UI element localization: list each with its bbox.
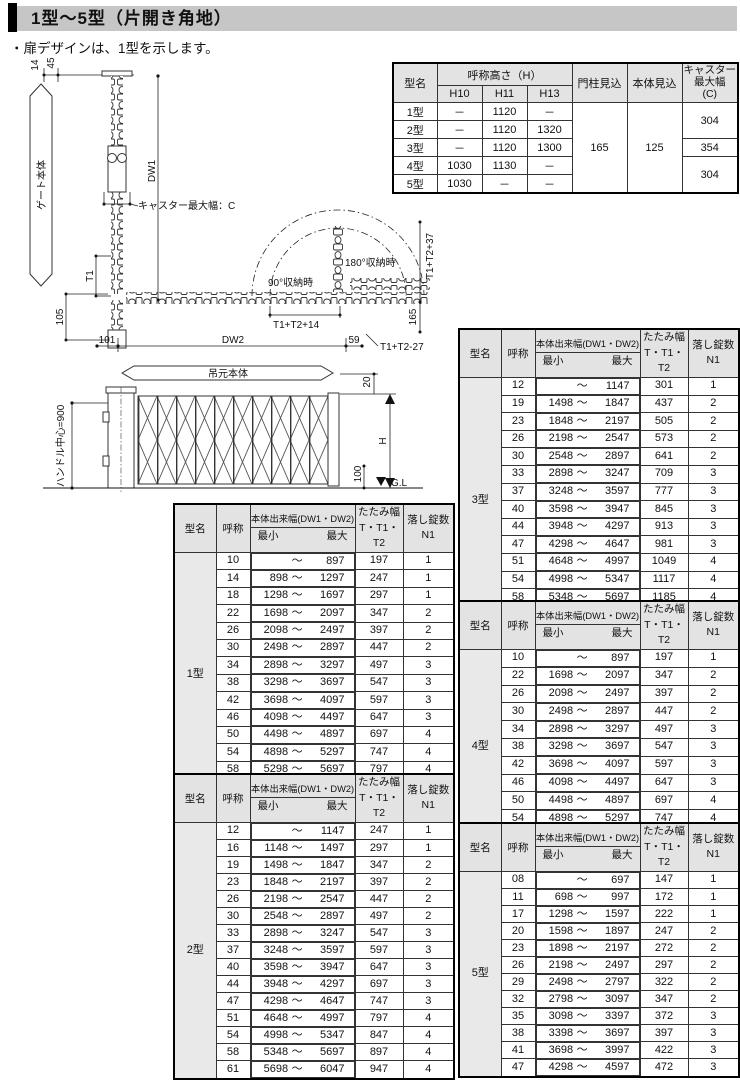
cell-c-lock: 2	[688, 974, 739, 991]
r-min: 2898	[252, 658, 289, 673]
col-model: 型名	[174, 504, 216, 552]
cell: －	[527, 157, 572, 175]
table-row: 504498～48976974	[459, 792, 739, 810]
cell-c-name: 34	[501, 721, 535, 739]
cell-range: 1298～1697	[251, 587, 355, 604]
cell-c-fold: 547	[355, 674, 403, 691]
r-max: 2897	[306, 909, 353, 924]
table-row: 302498～28974472	[459, 703, 739, 721]
r-min: 4298	[537, 1060, 574, 1075]
dim-100-label: 100	[353, 465, 364, 482]
cell-c-fold: 301	[640, 377, 688, 395]
cell-c-lock: 4	[403, 1027, 454, 1044]
cell-c-fold: 697	[640, 792, 688, 810]
r-tilde: ～	[573, 537, 591, 553]
cell-c-fold: 1049	[640, 553, 688, 571]
cell-c-lock: 1	[403, 822, 454, 840]
table-row: 5型08～6971471	[459, 871, 739, 889]
cell-c-fold: 647	[355, 709, 403, 726]
table-row: 262198～24972972	[459, 957, 739, 974]
item-header-row: 型名 呼称 本体出来幅(DW1・DW2) 最小 最大 たたみ幅 T・T1・T2 …	[174, 774, 454, 822]
t1t2p14-label: T1+T2+14	[273, 320, 320, 331]
cell-c-lock: 2	[688, 413, 739, 431]
col-max: 最大	[612, 847, 633, 863]
r-max: 2197	[591, 941, 638, 956]
cell-c-fold: 597	[355, 942, 403, 959]
r-tilde: ～	[288, 571, 306, 586]
cell-range: 2098～2497	[251, 622, 355, 639]
t1t2p37-label: T1+T2+37	[425, 232, 436, 279]
col-lock-sub: N1	[689, 353, 739, 369]
col-lock-title: 落し錠数	[404, 783, 454, 799]
table-row: 3型12～11473011	[459, 377, 739, 395]
r-max: 1497	[306, 841, 353, 856]
r-min: 2548	[537, 449, 574, 465]
r-tilde: ～	[288, 926, 306, 941]
cell-c-name: 30	[216, 639, 250, 656]
col-max: 最大	[612, 353, 633, 369]
cell-c-fold: 597	[355, 692, 403, 709]
cell-c-lock: 2	[688, 703, 739, 721]
cell-c-name: 30	[501, 448, 535, 466]
cell-range: 1848～2197	[251, 874, 355, 891]
cell-range: 1298～1597	[536, 906, 640, 923]
r-tilde: ～	[573, 873, 591, 888]
cell-c-name: 23	[216, 874, 250, 891]
r-max: 2497	[591, 958, 638, 973]
r-max: 3247	[306, 926, 353, 941]
cell-c-name: 46	[216, 709, 250, 726]
cell-c-fold: 497	[355, 657, 403, 674]
cell-c-name: 38	[501, 1025, 535, 1042]
cell-c-lock: 3	[403, 976, 454, 993]
dim-14-label: 14	[30, 59, 41, 71]
gate-stored-90	[332, 226, 344, 292]
col-fold-title: たたみ幅	[356, 505, 403, 521]
r-min: 4648	[252, 1011, 289, 1026]
table-row: 262098～24973972	[459, 685, 739, 703]
cell-c-lock: 3	[688, 518, 739, 536]
cell-range: 4998～5347	[536, 571, 640, 589]
gate-technical-drawing: 14 45 ゲート本体 キャスター最大幅：C DW1 T1 105 90°収納時…	[8, 56, 448, 506]
cell-c-fold: 777	[640, 483, 688, 501]
cell-c-lock: 1	[688, 871, 739, 889]
cell-c-name: 35	[501, 1008, 535, 1025]
table-row: 302548～28976412	[459, 448, 739, 466]
item-header-row: 型名 呼称 本体出来幅(DW1・DW2) 最小 最大 たたみ幅 T・T1・T2 …	[459, 601, 739, 649]
cell-c-fold: 347	[355, 857, 403, 874]
cell-c-lock: 3	[403, 657, 454, 674]
col-fold-title: たたみ幅	[641, 330, 688, 346]
cell-c-lock: 2	[688, 991, 739, 1008]
r-max: 3247	[591, 466, 638, 482]
model-name-cell: 3型	[459, 377, 501, 625]
r-tilde: ～	[288, 858, 306, 873]
cell-range: ～1147	[251, 823, 355, 840]
cell-range: 4998～5347	[251, 1027, 355, 1044]
table-row: 443948～42979133	[459, 518, 739, 536]
cell-range: 3598～3947	[536, 501, 640, 519]
r-min: 2498	[537, 975, 574, 990]
table-row: 262098～24973972	[174, 622, 454, 639]
cell-range: 2548～2897	[536, 448, 640, 466]
table-row: 231848～21973972	[174, 874, 454, 891]
dim-45-label: 45	[46, 57, 57, 69]
col-model: 型名	[459, 329, 501, 377]
cell-c-fold: 847	[355, 1027, 403, 1044]
cell-c-lock: 1	[688, 649, 739, 667]
cell-c-lock: 2	[688, 448, 739, 466]
r-tilde: ～	[288, 693, 306, 708]
r-max: 1847	[306, 858, 353, 873]
table-row: 231848～21975052	[459, 413, 739, 431]
cell-range: ～697	[536, 872, 640, 889]
cell-caster-value: 304	[682, 157, 738, 194]
cell-range: 1498～1847	[536, 395, 640, 413]
cell-c-lock: 3	[403, 993, 454, 1010]
cell-c-name: 51	[216, 1010, 250, 1027]
cell-range: 5698～6047	[251, 1061, 355, 1078]
r-max: 6047	[306, 1062, 353, 1077]
cell-c-name: 20	[501, 923, 535, 940]
table-row: 514648～49977974	[174, 1010, 454, 1027]
cell-c-name: 14	[216, 570, 250, 587]
type2-size-table: 型名 呼称 本体出来幅(DW1・DW2) 最小 最大 たたみ幅 T・T1・T2 …	[173, 773, 455, 1080]
cell: 1320	[527, 121, 572, 139]
cell-c-lock: 1	[688, 889, 739, 906]
cell-c-name: 18	[216, 587, 250, 604]
cell-c-fold: 647	[640, 774, 688, 792]
col-name: 呼称	[501, 823, 535, 871]
table-row: 413698～39974223	[459, 1042, 739, 1059]
r-tilde: ～	[288, 994, 306, 1009]
cell-c-fold: 347	[640, 667, 688, 685]
r-max: 4497	[306, 710, 353, 725]
cell-c-name: 26	[501, 685, 535, 703]
stored-180-label: 180°収納時	[345, 256, 396, 269]
col-lock-title: 落し錠数	[689, 338, 739, 354]
cell-c-fold: 397	[355, 622, 403, 639]
table-row: 585348～56978974	[174, 1044, 454, 1061]
cell-c-name: 47	[216, 993, 250, 1010]
table-row: 171298～15972221	[459, 906, 739, 923]
r-max: 2897	[591, 449, 638, 465]
cell-c-fold: 747	[355, 993, 403, 1010]
cell-c-lock: 1	[403, 570, 454, 587]
cell-c-fold: 641	[640, 448, 688, 466]
r-max: 2547	[591, 431, 638, 447]
cell-c-name: 44	[216, 976, 250, 993]
table-row: 383398～36973973	[459, 1025, 739, 1042]
cell-range: 3698～3997	[536, 1042, 640, 1059]
dim-h-label: H	[378, 437, 389, 444]
cell-range: 3948～4297	[536, 518, 640, 536]
cell-c-name: 40	[501, 501, 535, 519]
cell-c-lock: 1	[688, 377, 739, 395]
cell-range: ～897	[251, 553, 355, 570]
cell-c-name: 26	[216, 891, 250, 908]
table-row: 1型10～8971971	[174, 552, 454, 570]
cell-c-name: 33	[501, 465, 535, 483]
r-max: 4097	[591, 757, 638, 773]
r-tilde: ～	[288, 824, 306, 839]
cell-range: 3698～4097	[251, 692, 355, 709]
r-tilde: ～	[288, 960, 306, 975]
col-range: 本体出来幅(DW1・DW2) 最小 最大	[250, 774, 355, 822]
col-lock-sub: N1	[404, 798, 454, 814]
type4-size-table: 型名 呼称 本体出来幅(DW1・DW2) 最小 最大 たたみ幅 T・T1・T2 …	[458, 600, 740, 847]
cell-c-name: 23	[501, 413, 535, 431]
col-lock: 落し錠数 N1	[403, 774, 454, 822]
r-max: 3597	[591, 484, 638, 500]
design-note: ・扉デザインは、1型を示します。	[10, 37, 219, 57]
cell-c-lock: 3	[403, 674, 454, 691]
r-max: 2197	[591, 414, 638, 430]
cell-c-lock: 2	[688, 430, 739, 448]
spec-col-h11: H11	[482, 86, 527, 103]
type3-size-table: 型名 呼称 本体出来幅(DW1・DW2) 最小 最大 たたみ幅 T・T1・T2 …	[458, 328, 740, 626]
cell-c-name: 34	[216, 657, 250, 674]
r-min: 3298	[252, 675, 289, 690]
col-range: 本体出来幅(DW1・DW2) 最小 最大	[250, 504, 355, 552]
r-min: 2548	[252, 909, 289, 924]
cell-c-fold: 1117	[640, 571, 688, 589]
r-max: 4897	[591, 793, 638, 809]
r-tilde: ～	[573, 975, 591, 990]
r-tilde: ～	[573, 924, 591, 939]
cell-c-name: 33	[216, 925, 250, 942]
r-tilde: ～	[573, 739, 591, 755]
r-min: 2498	[537, 704, 574, 720]
col-name: 呼称	[501, 601, 535, 649]
col-lock-title: 落し錠数	[404, 513, 454, 529]
r-tilde: ～	[288, 892, 306, 907]
col-fold-sub: T・T1・T2	[356, 521, 403, 552]
cell-c-fold: 347	[640, 991, 688, 1008]
cell: 1300	[527, 139, 572, 157]
r-max: 4597	[591, 1060, 638, 1075]
r-max: 697	[591, 873, 638, 888]
r-min: 1298	[537, 907, 574, 922]
cell-c-name: 38	[216, 674, 250, 691]
cell-c-name: 54	[501, 571, 535, 589]
cell-c-fold: 222	[640, 906, 688, 923]
cell-range: 1598～1897	[536, 923, 640, 940]
col-fold-sub: T・T1・T2	[641, 346, 688, 377]
cell-range: 2498～2897	[536, 703, 640, 721]
r-min: 2198	[537, 431, 574, 447]
cell-range: 2898～3247	[536, 465, 640, 483]
table-row: 474298～45974723	[459, 1059, 739, 1077]
cell-range: 1848～2197	[536, 413, 640, 431]
table-row: 464098～44976473	[174, 709, 454, 726]
r-tilde: ～	[573, 572, 591, 588]
table-row: 302498～28974472	[174, 639, 454, 656]
r-tilde: ～	[288, 875, 306, 890]
cell-range: 2798～3097	[536, 991, 640, 1008]
r-tilde: ～	[573, 793, 591, 809]
cell-range: 2898～3297	[536, 721, 640, 739]
cell-range: 2198～2547	[536, 430, 640, 448]
r-tilde: ～	[573, 449, 591, 465]
cell-c-fold: 747	[355, 744, 403, 761]
r-min: 1598	[537, 924, 574, 939]
cell-range: ～1147	[536, 378, 640, 396]
col-name: 呼称	[216, 504, 250, 552]
r-min: 3948	[537, 519, 574, 535]
cell-c-name: 54	[216, 1027, 250, 1044]
cell-c-name: 30	[216, 908, 250, 925]
r-tilde: ～	[288, 841, 306, 856]
stored-90-label: 90°収納時	[268, 276, 313, 289]
cell-c-lock: 1	[403, 587, 454, 604]
r-tilde: ～	[288, 710, 306, 725]
cell-c-lock: 2	[403, 908, 454, 925]
r-max: 3997	[591, 1043, 638, 1058]
table-row: 443948～42976973	[174, 976, 454, 993]
r-min: 2898	[537, 466, 574, 482]
table-row: 221698～20973472	[459, 667, 739, 685]
r-tilde: ～	[288, 1011, 306, 1026]
dw1-label: DW1	[147, 159, 158, 182]
cell: 1120	[482, 121, 527, 139]
col-fold-sub: T・T1・T2	[641, 840, 688, 871]
r-tilde: ～	[573, 554, 591, 570]
r-max: 4647	[306, 994, 353, 1009]
r-max: 1697	[306, 588, 353, 603]
r-max: 4897	[306, 727, 353, 742]
cell-c-lock: 2	[688, 957, 739, 974]
hanging-body-label: 吊元本体	[208, 367, 248, 380]
item-header-row: 型名 呼称 本体出来幅(DW1・DW2) 最小 最大 たたみ幅 T・T1・T2 …	[459, 329, 739, 377]
cell-c-lock: 3	[403, 925, 454, 942]
r-max: 3297	[591, 722, 638, 738]
caster-max-width-label: キャスター最大幅：C	[138, 199, 235, 212]
r-max: 2197	[306, 875, 353, 890]
r-min: 3298	[537, 739, 574, 755]
r-min: 1898	[537, 941, 574, 956]
r-tilde: ～	[573, 519, 591, 535]
table-row: 403598～39478453	[459, 501, 739, 519]
cell-c-fold: 297	[355, 840, 403, 857]
col-range-title: 本体出来幅(DW1・DW2)	[251, 782, 355, 798]
cell-c-lock: 2	[403, 874, 454, 891]
table-row: 514648～499710494	[459, 553, 739, 571]
page-title: 1型～5型（片開き角地）	[31, 6, 232, 31]
cell-c-lock: 3	[688, 1059, 739, 1077]
table-row: 231898～21972722	[459, 940, 739, 957]
table-row: 423698～40975973	[174, 692, 454, 709]
r-tilde: ～	[288, 554, 306, 569]
cell-range: 4098～4497	[536, 774, 640, 792]
r-tilde: ～	[573, 890, 591, 905]
cell-range: 3598～3947	[251, 959, 355, 976]
r-max: 997	[591, 890, 638, 905]
col-fold: たたみ幅 T・T1・T2	[640, 329, 688, 377]
table-row: 373248～35977773	[459, 483, 739, 501]
gate-body-label: ゲート本体	[35, 160, 48, 210]
r-tilde: ～	[288, 640, 306, 655]
cell-c-fold: 573	[640, 430, 688, 448]
cell-c-name: 58	[216, 1044, 250, 1061]
cell: 1120	[482, 139, 527, 157]
r-min: 4648	[537, 554, 574, 570]
table-row: 181298～16972971	[174, 587, 454, 604]
cell-c-lock: 1	[688, 906, 739, 923]
cell-c-name: 37	[216, 942, 250, 959]
cell-c-lock: 2	[403, 891, 454, 908]
r-max: 3397	[591, 1009, 638, 1024]
r-min: 2498	[252, 640, 289, 655]
col-model: 型名	[174, 774, 216, 822]
r-tilde: ～	[573, 686, 591, 702]
table-row: 383298～36975473	[174, 674, 454, 691]
cell-c-name: 08	[501, 871, 535, 889]
r-max: 1147	[591, 379, 638, 395]
col-fold-sub: T・T1・T2	[641, 618, 688, 649]
cell: －	[482, 175, 527, 194]
cell-range: 2198～2547	[251, 891, 355, 908]
r-min: 3698	[537, 757, 574, 773]
r-tilde: ～	[573, 484, 591, 500]
table-row: 161148～14972971	[174, 840, 454, 857]
cell-c-name: 30	[501, 703, 535, 721]
r-max: 897	[306, 554, 353, 569]
table-row: 332898～32475473	[174, 925, 454, 942]
r-min: 3098	[537, 1009, 574, 1024]
table-row: 332898～32477093	[459, 465, 739, 483]
cell-c-fold: 797	[355, 1010, 403, 1027]
cell-c-fold: 447	[355, 891, 403, 908]
r-tilde: ～	[573, 775, 591, 791]
r-min: 3248	[537, 484, 574, 500]
r-tilde: ～	[288, 727, 306, 742]
cell-c-lock: 4	[688, 792, 739, 810]
cell-c-name: 11	[501, 889, 535, 906]
cell-c-name: 38	[501, 738, 535, 756]
r-min: 1698	[252, 606, 289, 621]
cell-c-lock: 3	[403, 942, 454, 959]
cell-c-lock: 3	[688, 483, 739, 501]
cell-range: 4298～4597	[536, 1059, 640, 1076]
cell-c-name: 26	[501, 957, 535, 974]
cell-c-name: 22	[216, 605, 250, 622]
cell-c-fold: 547	[640, 738, 688, 756]
dw2-label: DW2	[222, 335, 245, 346]
cell-c-lock: 4	[403, 1061, 454, 1079]
cell-c-lock: 3	[688, 774, 739, 792]
r-max: 5347	[591, 572, 638, 588]
cell-c-fold: 347	[355, 605, 403, 622]
table-row: 423698～40975973	[459, 756, 739, 774]
r-min: 2898	[537, 722, 574, 738]
r-tilde: ～	[288, 1062, 306, 1077]
cell-c-name: 50	[216, 726, 250, 743]
cell-c-name: 61	[216, 1061, 250, 1079]
col-fold-title: たたみ幅	[356, 775, 403, 791]
cell-c-name: 32	[501, 991, 535, 1008]
cell-c-fold: 322	[640, 974, 688, 991]
handle-center-label: ハンドル中心=900	[54, 404, 67, 487]
table-row: 544998～534711174	[459, 571, 739, 589]
cell-c-lock: 2	[688, 667, 739, 685]
gate-elevation-lattice	[138, 396, 328, 484]
cell-c-lock: 3	[688, 721, 739, 739]
cell-range: 2198～2497	[536, 957, 640, 974]
cell-c-lock: 4	[403, 1044, 454, 1061]
cell-c-name: 16	[216, 840, 250, 857]
r-min: 3248	[252, 943, 289, 958]
